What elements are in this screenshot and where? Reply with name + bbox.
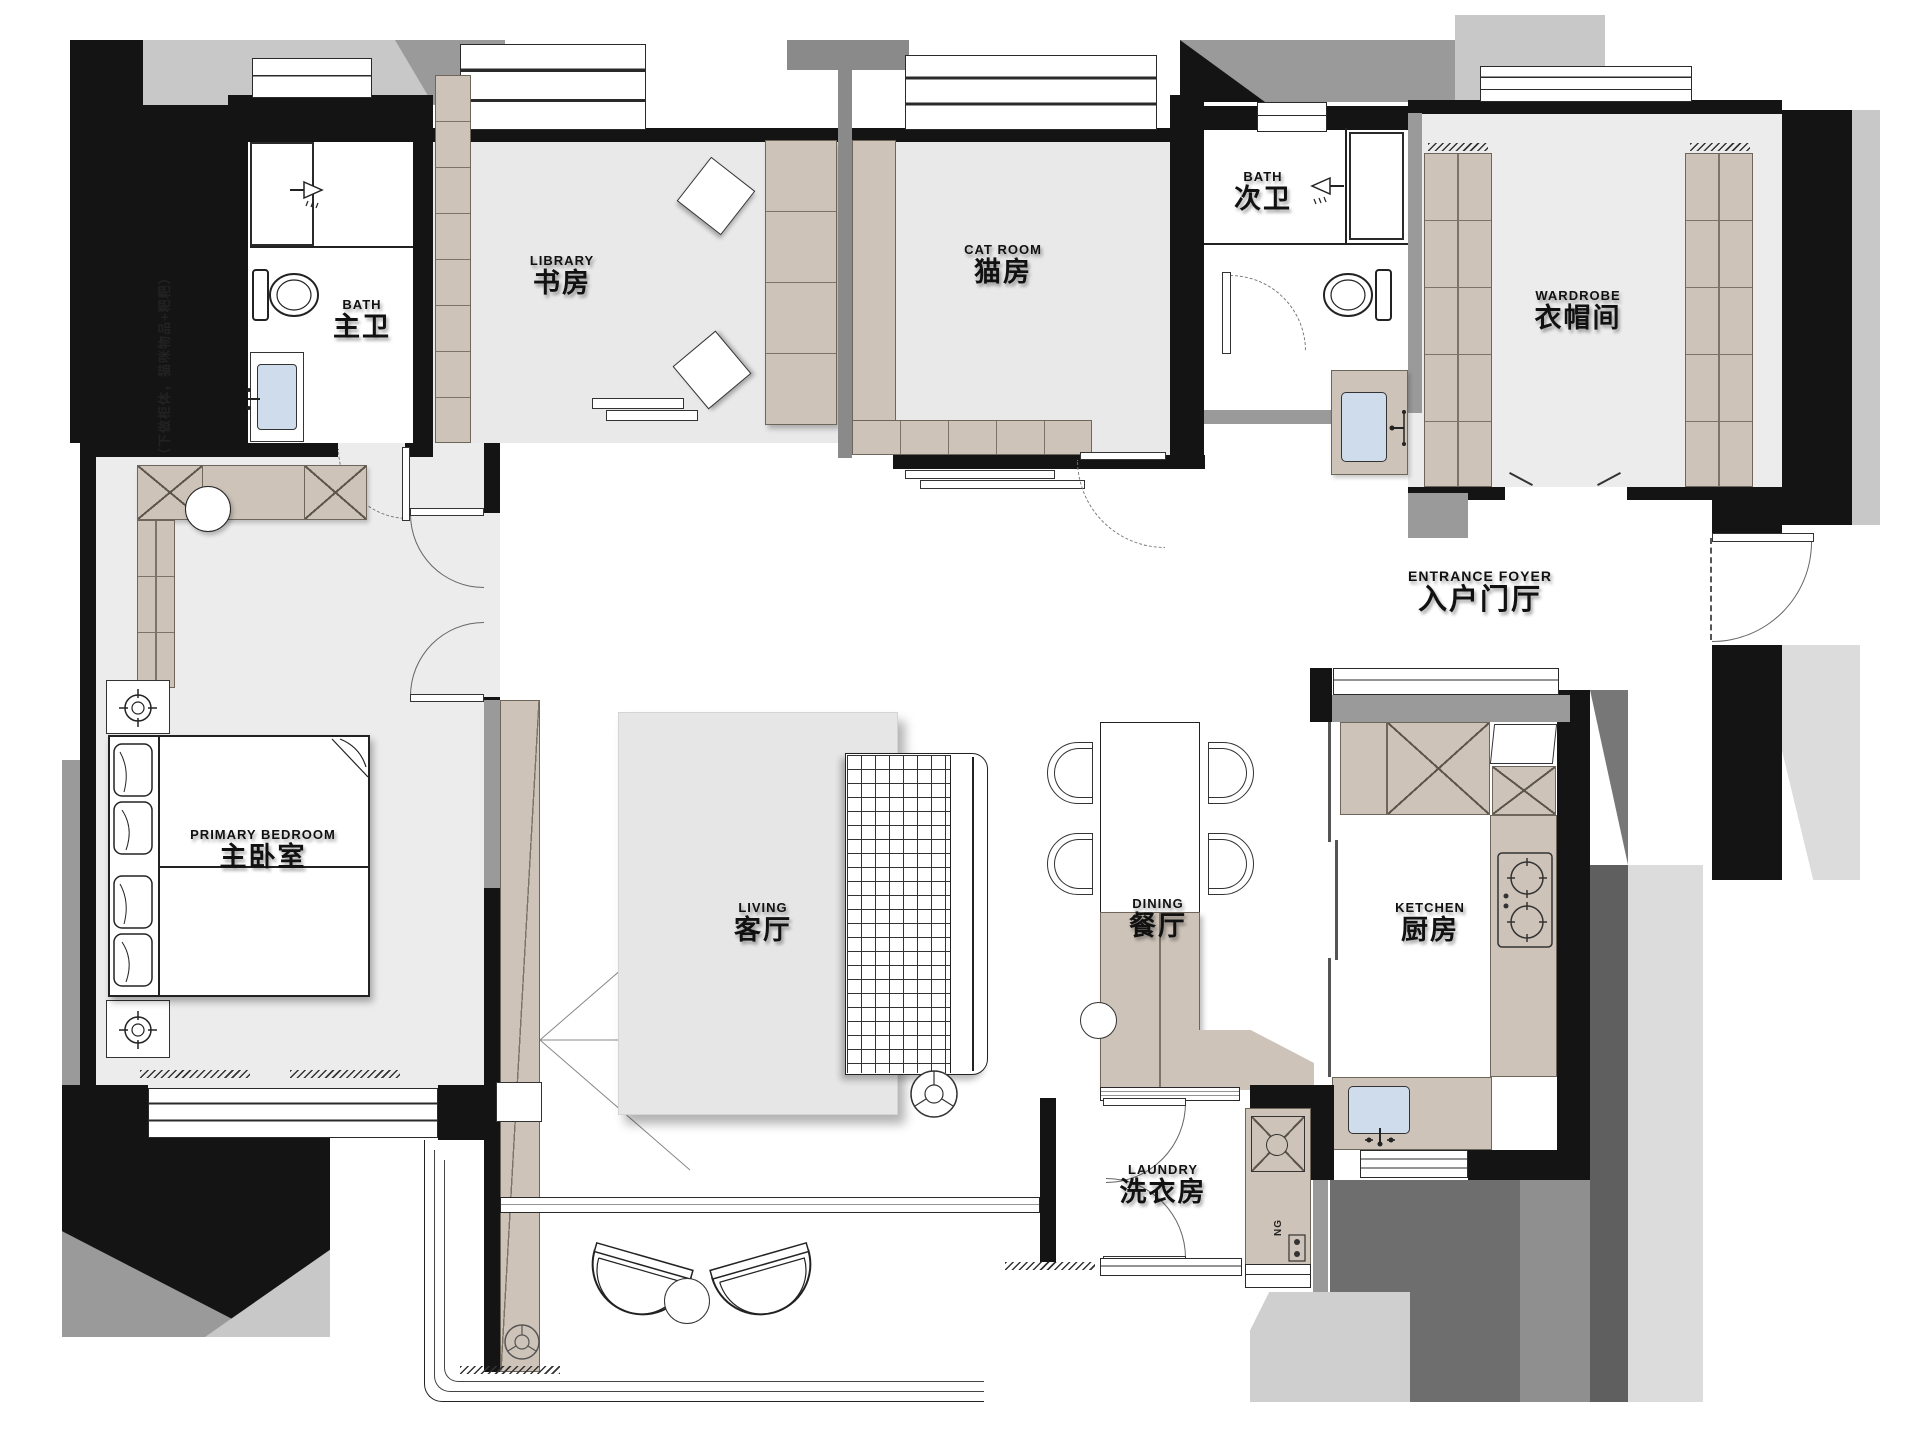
label-laundry-en: LAUNDRY	[1120, 1163, 1207, 1177]
wardrobe-cabinet-right	[1685, 153, 1753, 487]
wall-bath-master-top	[228, 95, 433, 142]
label-cat-room-en: CAT ROOM	[964, 243, 1042, 257]
window-bath-second	[1257, 102, 1327, 132]
kitchen-slider-1	[1328, 722, 1331, 842]
wardrobe-cabinet-left	[1424, 153, 1492, 487]
hatch-bedroom-window-1	[140, 1070, 250, 1078]
label-bath-second: BATH 次卫	[1234, 170, 1292, 215]
door-leaf-laundry-top	[1103, 1098, 1186, 1106]
wall-bath2-right	[1408, 113, 1422, 413]
wall-wardrobe-top	[1408, 100, 1782, 114]
label-wardrobe-en: WARDROBE	[1535, 289, 1622, 303]
desk-library	[765, 140, 837, 425]
dining-stool	[1080, 1002, 1117, 1039]
sofa-armrest-line	[972, 757, 974, 1071]
label-foyer: ENTRANCE FOYER 入户门厅	[1408, 569, 1552, 618]
kitchen-faucet-icon	[1362, 1128, 1398, 1150]
label-laundry: LAUNDRY 洗衣房	[1120, 1163, 1207, 1208]
window-library	[460, 44, 646, 130]
toilet-bath2-icon	[1316, 262, 1392, 328]
cat-climbing-wall	[852, 140, 896, 425]
exterior-col-br3	[1590, 865, 1628, 1402]
label-bedroom-zh: 主卧室	[190, 842, 336, 873]
wall-tv-gray	[484, 700, 500, 890]
label-bath-second-zh: 次卫	[1234, 184, 1292, 215]
door-arc-entrance	[1712, 542, 1812, 642]
exterior-shaft-right	[1782, 110, 1852, 525]
window-cat-room	[905, 55, 1157, 130]
shower-head-master-icon	[288, 172, 332, 212]
bed-blanket-fold-icon	[330, 737, 370, 781]
hall-sink-basin	[1341, 392, 1387, 462]
exterior-wedge-kitchen-right	[1590, 690, 1628, 865]
cat-step-2	[920, 480, 1085, 489]
kitchen-tray	[1490, 724, 1557, 764]
kitchen-cab-top-right	[1492, 766, 1556, 815]
hatch-laundry	[1005, 1262, 1095, 1270]
exterior-block-topmid	[787, 40, 909, 70]
label-bath-master-zh: 主卫	[333, 312, 391, 343]
shower-head-bath2-icon	[1300, 168, 1346, 208]
wall-bath2-inner-h	[1204, 243, 1408, 245]
label-dining: DINING 餐厅	[1129, 897, 1187, 942]
bed-pillows-icon	[112, 740, 156, 992]
label-foyer-zh: 入户门厅	[1408, 584, 1552, 617]
label-laundry-zh: 洗衣房	[1120, 1177, 1207, 1208]
bedroom-hamper	[185, 486, 231, 532]
wall-divider-lib-cat	[838, 68, 852, 458]
label-wardrobe: WARDROBE 衣帽间	[1535, 289, 1622, 334]
kitchen-sink	[1348, 1086, 1410, 1134]
window-laundry-south	[1245, 1264, 1311, 1288]
cat-cabinet	[852, 420, 1092, 455]
exterior-shaft-kitchen-right	[1557, 690, 1590, 1182]
door-leaf-bedroom-upper	[410, 508, 484, 516]
exterior-col-br4	[1628, 865, 1703, 1402]
sofa-cushions	[847, 755, 951, 1073]
exterior-col-br2	[1520, 1180, 1590, 1402]
label-cat-room-zh: 猫房	[964, 257, 1042, 288]
label-dining-en: DINING	[1129, 897, 1187, 911]
wall-entrance-top	[1712, 493, 1782, 538]
floor-plan: 成品猫咪跑酷区 （下做柜体，猫咪物品+粑粑）	[0, 0, 1920, 1440]
bedroom-cabinet-left	[137, 520, 175, 688]
gas-meter-icon	[1288, 1234, 1306, 1262]
label-dining-zh: 餐厅	[1129, 911, 1187, 942]
kitchen-slider-3	[1328, 958, 1331, 1077]
nightstand-bottom-lamp-icon	[118, 1010, 158, 1050]
faucet-master-icon	[246, 386, 266, 412]
wall-bedroom-north-a	[82, 443, 338, 457]
floor-cat-room	[852, 140, 1170, 455]
library-ledge-2	[606, 410, 698, 421]
kitchen-fridge	[1387, 722, 1490, 815]
tv-unit	[496, 1082, 542, 1122]
nightstand-top-lamp-icon	[118, 688, 158, 728]
hatch-wardrobe-right	[1690, 143, 1750, 151]
bookshelf-library	[435, 75, 471, 443]
wall-laundry-east-strip	[1313, 1180, 1328, 1292]
window-laundry-balcony	[1100, 1258, 1242, 1276]
wall-bedroom-south-left	[82, 1085, 148, 1140]
exterior-edge-entrance-south	[1782, 645, 1860, 880]
shower-partition-master	[250, 246, 413, 248]
exterior-balcony-br	[1250, 1292, 1410, 1402]
label-kitchen-zh: 厨房	[1395, 915, 1465, 946]
exterior-strip-left	[62, 760, 80, 1085]
wall-kitchen-south-right	[1468, 1150, 1590, 1180]
cat-step-1	[905, 470, 1055, 479]
kitchen-cab-top-left	[1340, 722, 1387, 815]
side-table-icon	[908, 1068, 960, 1120]
wall-cat-right	[1170, 95, 1204, 469]
window-kitchen-foyer	[1333, 668, 1559, 695]
label-living-en: LIVING	[734, 901, 792, 915]
door-leaf-bedroom-lower	[410, 694, 484, 702]
door-arc-cat	[1077, 460, 1165, 548]
wall-bath-master-left	[228, 110, 248, 443]
bedroom-wardrobe-x2	[304, 465, 367, 520]
shower-bay-bath2	[1349, 132, 1404, 240]
dining-counter-ext	[1199, 1030, 1314, 1090]
label-living: LIVING 客厅	[734, 901, 792, 946]
laundry-sink-drain	[1266, 1134, 1288, 1156]
library-ledge-1	[592, 398, 684, 409]
hatch-wardrobe-left	[1428, 143, 1488, 151]
label-library-en: LIBRARY	[530, 254, 594, 268]
exterior-block-entrance-south	[1712, 645, 1782, 880]
door-leaf-bath2	[1222, 272, 1231, 354]
door-leaf-entrance	[1712, 533, 1814, 542]
label-library-zh: 书房	[530, 268, 594, 299]
gas-meter-label: NG	[1273, 1219, 1284, 1236]
label-bedroom-en: PRIMARY BEDROOM	[190, 828, 336, 842]
wall-kitchen-north-stub	[1310, 668, 1332, 722]
label-library: LIBRARY 书房	[530, 254, 594, 299]
window-bath-master	[252, 58, 372, 98]
hatch-balcony	[460, 1366, 560, 1374]
label-bedroom: PRIMARY BEDROOM 主卧室	[190, 828, 336, 873]
label-cat-room: CAT ROOM 猫房	[964, 243, 1042, 288]
stove-icon	[1497, 852, 1553, 948]
label-foyer-en: ENTRANCE FOYER	[1408, 569, 1552, 584]
door-leaf-bath-master	[402, 447, 410, 521]
window-bedroom-south	[148, 1088, 438, 1138]
lounge-chair-right-icon	[700, 1228, 840, 1368]
hatch-bedroom-window-2	[290, 1070, 400, 1078]
label-bath-master-en: BATH	[333, 298, 391, 312]
label-bath-second-en: BATH	[1234, 170, 1292, 184]
wall-laundry-left	[1040, 1098, 1056, 1262]
wall-bath2-south	[1204, 410, 1331, 424]
wall-foyer-col	[1408, 493, 1468, 538]
label-bath-master: BATH 主卫	[333, 298, 391, 343]
label-kitchen-en: KETCHEN	[1395, 901, 1465, 915]
toilet-master-icon	[252, 262, 324, 328]
hall-sink-faucet-icon	[1386, 408, 1408, 448]
window-kitchen-south	[1360, 1150, 1468, 1178]
window-wardrobe	[1480, 66, 1692, 102]
label-kitchen: KETCHEN 厨房	[1395, 901, 1465, 946]
wall-kitchen-north	[1330, 695, 1570, 722]
wall-bedroom-east-top	[484, 443, 500, 513]
wall-bath-lib-divider	[413, 128, 433, 443]
wall-left-outer	[80, 430, 96, 1085]
door-leaf-cat	[1080, 452, 1166, 460]
label-living-zh: 客厅	[734, 915, 792, 946]
exterior-edge-right	[1852, 110, 1880, 525]
dining-table	[1100, 722, 1200, 914]
label-wardrobe-zh: 衣帽间	[1535, 303, 1622, 334]
kitchen-slider-2	[1335, 840, 1338, 960]
balcony-table	[664, 1278, 710, 1324]
wall-bedroom-south-right	[438, 1085, 484, 1140]
